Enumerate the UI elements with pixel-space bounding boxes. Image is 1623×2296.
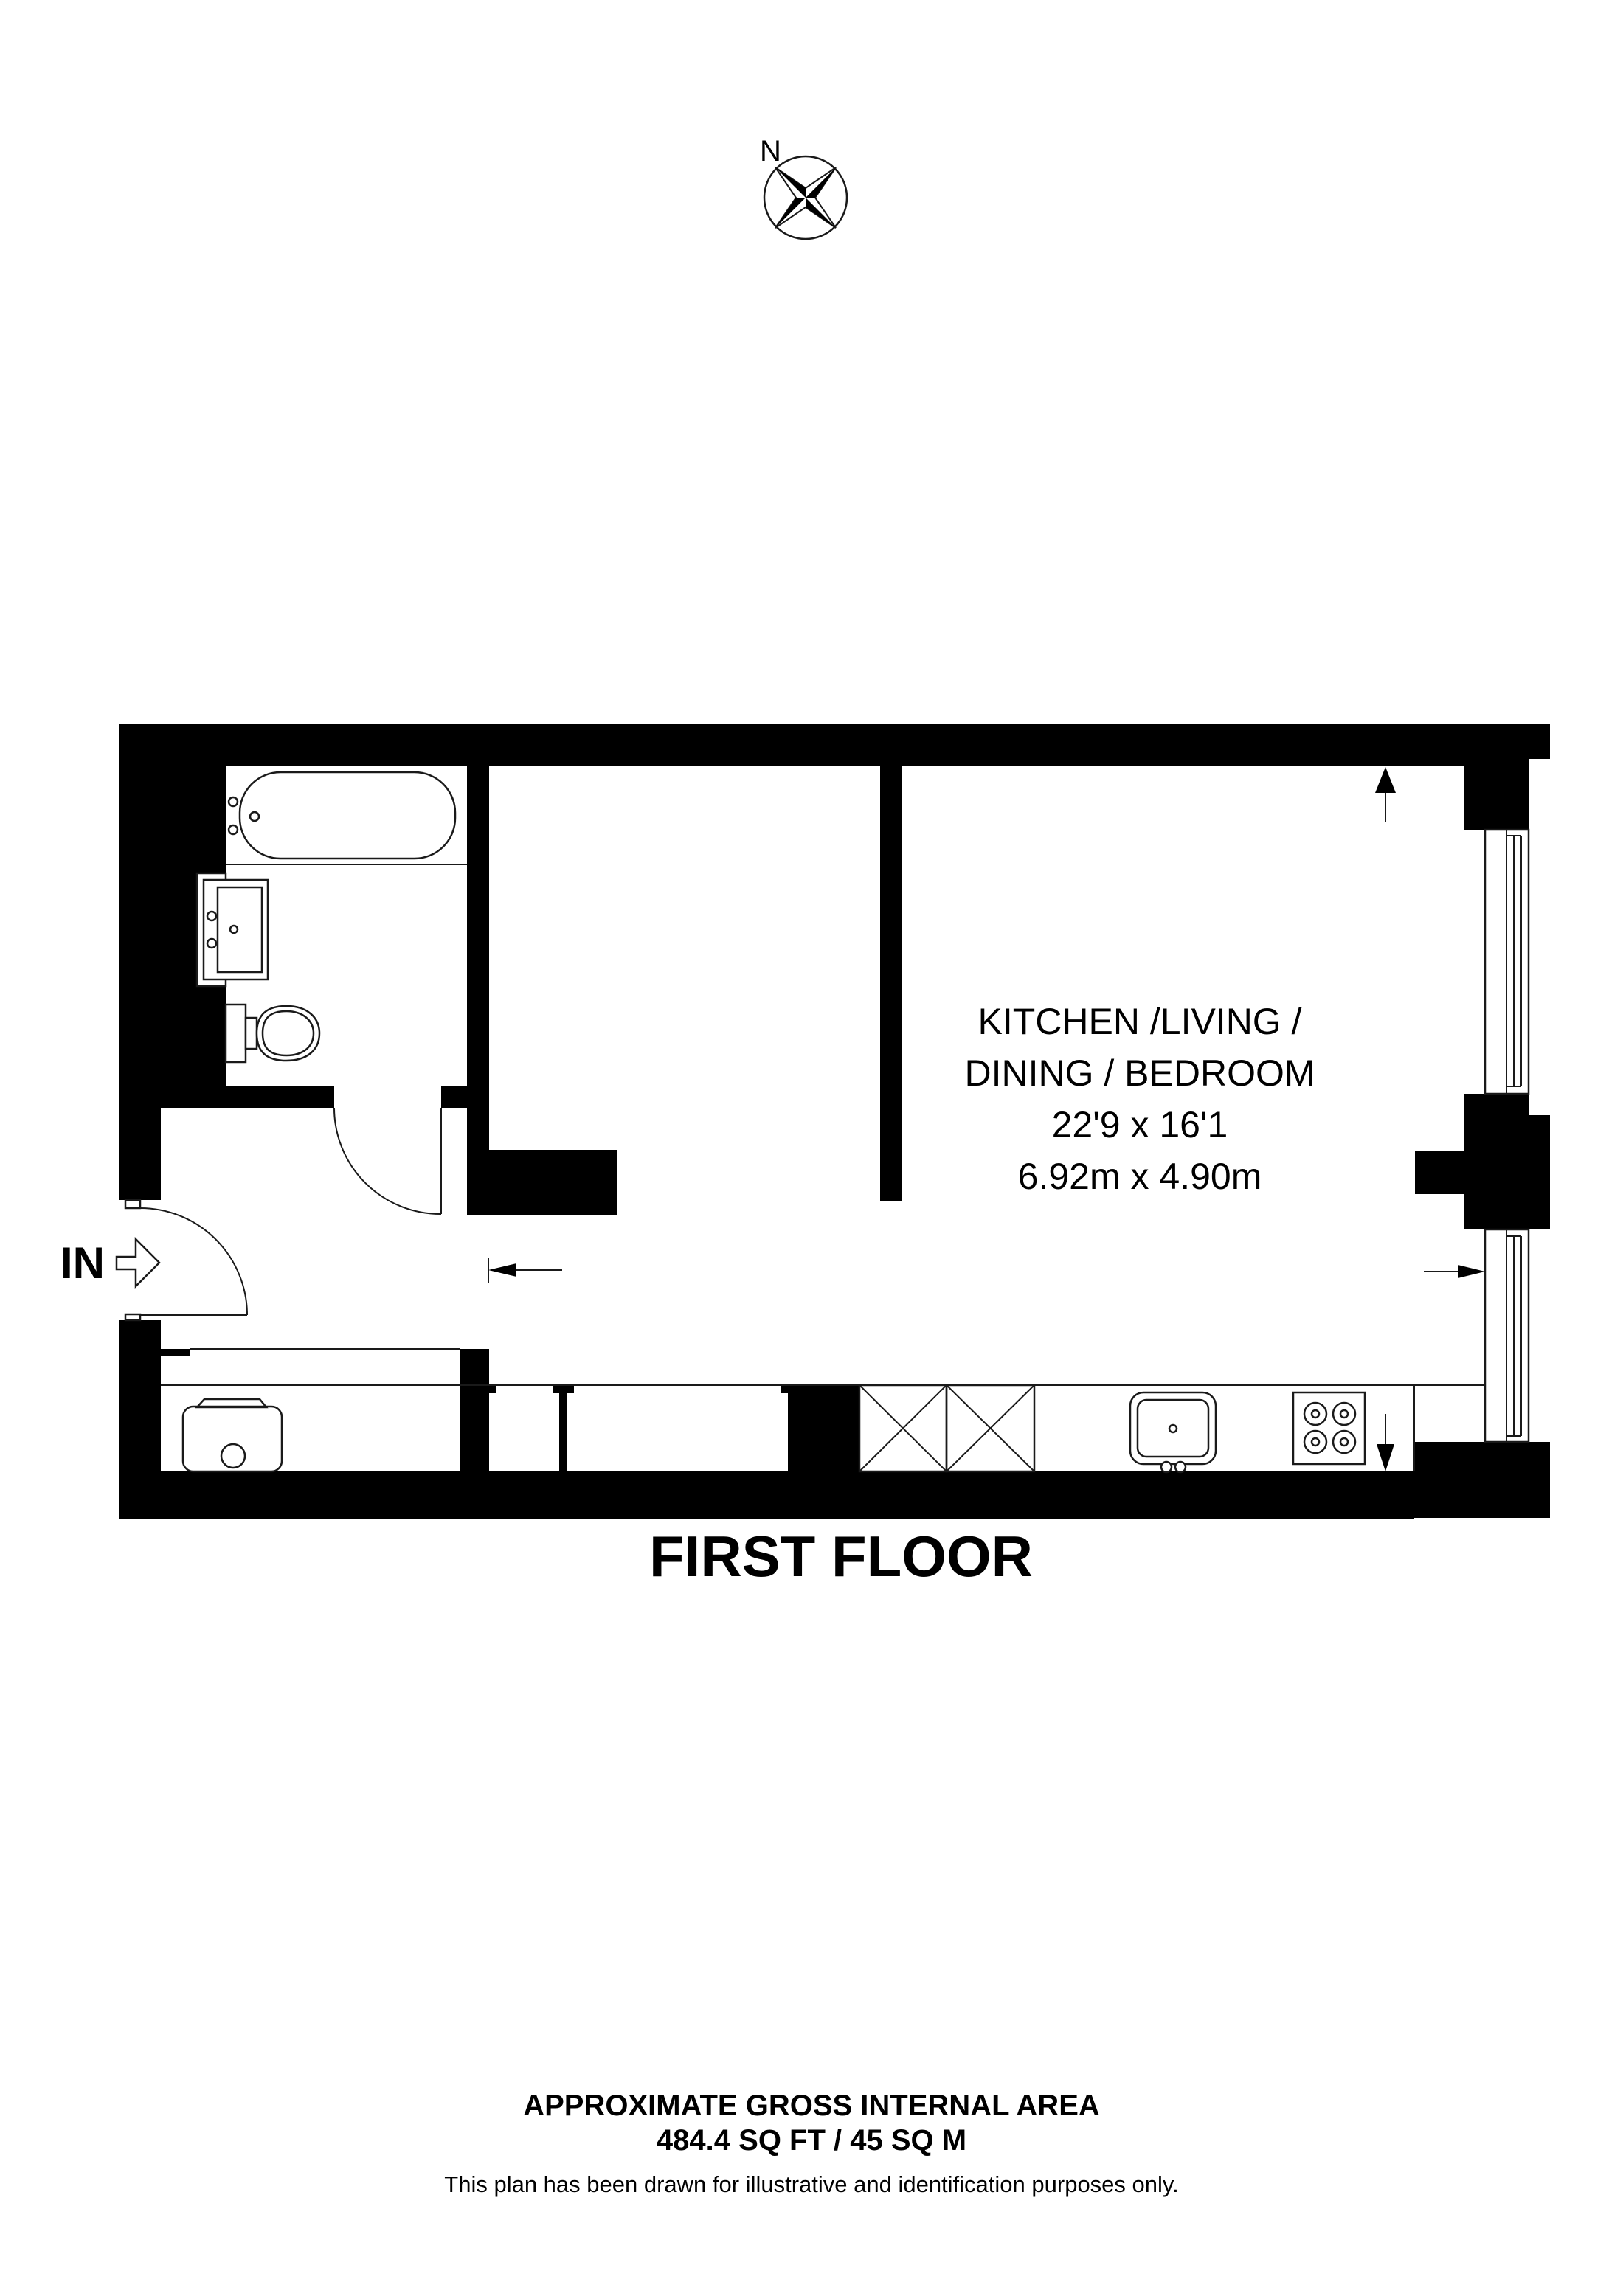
arrow-right-icon bbox=[1424, 1265, 1485, 1278]
window-lower bbox=[1485, 1229, 1529, 1442]
wall-segment bbox=[1529, 1115, 1550, 1229]
wall-segment bbox=[1464, 766, 1529, 830]
door-swing-arc bbox=[334, 1108, 441, 1214]
wall-segment bbox=[788, 1385, 859, 1471]
entrance-arrow-icon bbox=[117, 1239, 159, 1286]
floorplan-drawing: N bbox=[0, 0, 1623, 2296]
boiler-unit bbox=[183, 1399, 282, 1471]
bathtub-taps-icon bbox=[229, 797, 259, 834]
compass-icon: N bbox=[760, 135, 847, 239]
arrow-up-icon bbox=[1375, 767, 1396, 822]
wall-segment bbox=[460, 1349, 489, 1471]
bathroom-sink bbox=[197, 873, 268, 986]
wall-segment bbox=[197, 724, 226, 873]
cabinet-x-right bbox=[947, 1385, 1034, 1471]
wall-segment bbox=[161, 1349, 190, 1356]
bathroom-door bbox=[334, 1108, 441, 1214]
toilet bbox=[226, 1005, 319, 1062]
entrance: IN bbox=[60, 1238, 159, 1288]
room-name-line1: KITCHEN /LIVING / bbox=[978, 1001, 1302, 1042]
footer: APPROXIMATE GROSS INTERNAL AREA 484.4 SQ… bbox=[444, 2089, 1178, 2197]
floorplan-page: N bbox=[0, 0, 1623, 2296]
wall-segment bbox=[119, 724, 197, 1108]
wall-segment bbox=[441, 1086, 467, 1108]
wall-segment bbox=[1529, 724, 1550, 759]
disclaimer: This plan has been drawn for illustrativ… bbox=[444, 2171, 1178, 2197]
floor-title: FIRST FLOOR bbox=[649, 1524, 1033, 1589]
entrance-label: IN bbox=[60, 1238, 105, 1288]
cabinet-x-left bbox=[859, 1385, 947, 1471]
room-label: KITCHEN /LIVING / DINING / BEDROOM 22'9 … bbox=[964, 1001, 1315, 1197]
wall-segment bbox=[489, 1385, 496, 1393]
bathtub bbox=[226, 772, 467, 864]
window-upper bbox=[1485, 830, 1529, 1094]
room-name-line2: DINING / BEDROOM bbox=[964, 1052, 1315, 1094]
wall-segment bbox=[880, 766, 902, 1201]
room-dims-metric: 6.92m x 4.90m bbox=[1018, 1156, 1262, 1197]
wall-segment bbox=[553, 1385, 574, 1393]
wall-segment bbox=[119, 724, 1529, 766]
wall-segment bbox=[467, 766, 489, 1215]
area-value: 484.4 SQ FT / 45 SQ M bbox=[657, 2124, 966, 2157]
wall-segment bbox=[489, 1150, 617, 1215]
wall-segment bbox=[1415, 1151, 1464, 1194]
wall-segment bbox=[1464, 1094, 1529, 1229]
compass-north-label: N bbox=[760, 135, 781, 167]
wall-segment bbox=[559, 1393, 567, 1471]
kitchen-sink bbox=[1130, 1392, 1216, 1472]
arrow-left-icon bbox=[488, 1258, 562, 1283]
room-dims-imperial: 22'9 x 16'1 bbox=[1052, 1104, 1228, 1145]
wall-segment bbox=[119, 1086, 334, 1108]
arrow-down-icon bbox=[1377, 1414, 1394, 1471]
wall-segment bbox=[119, 1471, 1414, 1519]
area-heading: APPROXIMATE GROSS INTERNAL AREA bbox=[523, 2089, 1100, 2122]
wall-segment bbox=[119, 1108, 161, 1200]
wall-segment bbox=[1414, 1442, 1550, 1518]
hob bbox=[1293, 1392, 1365, 1464]
